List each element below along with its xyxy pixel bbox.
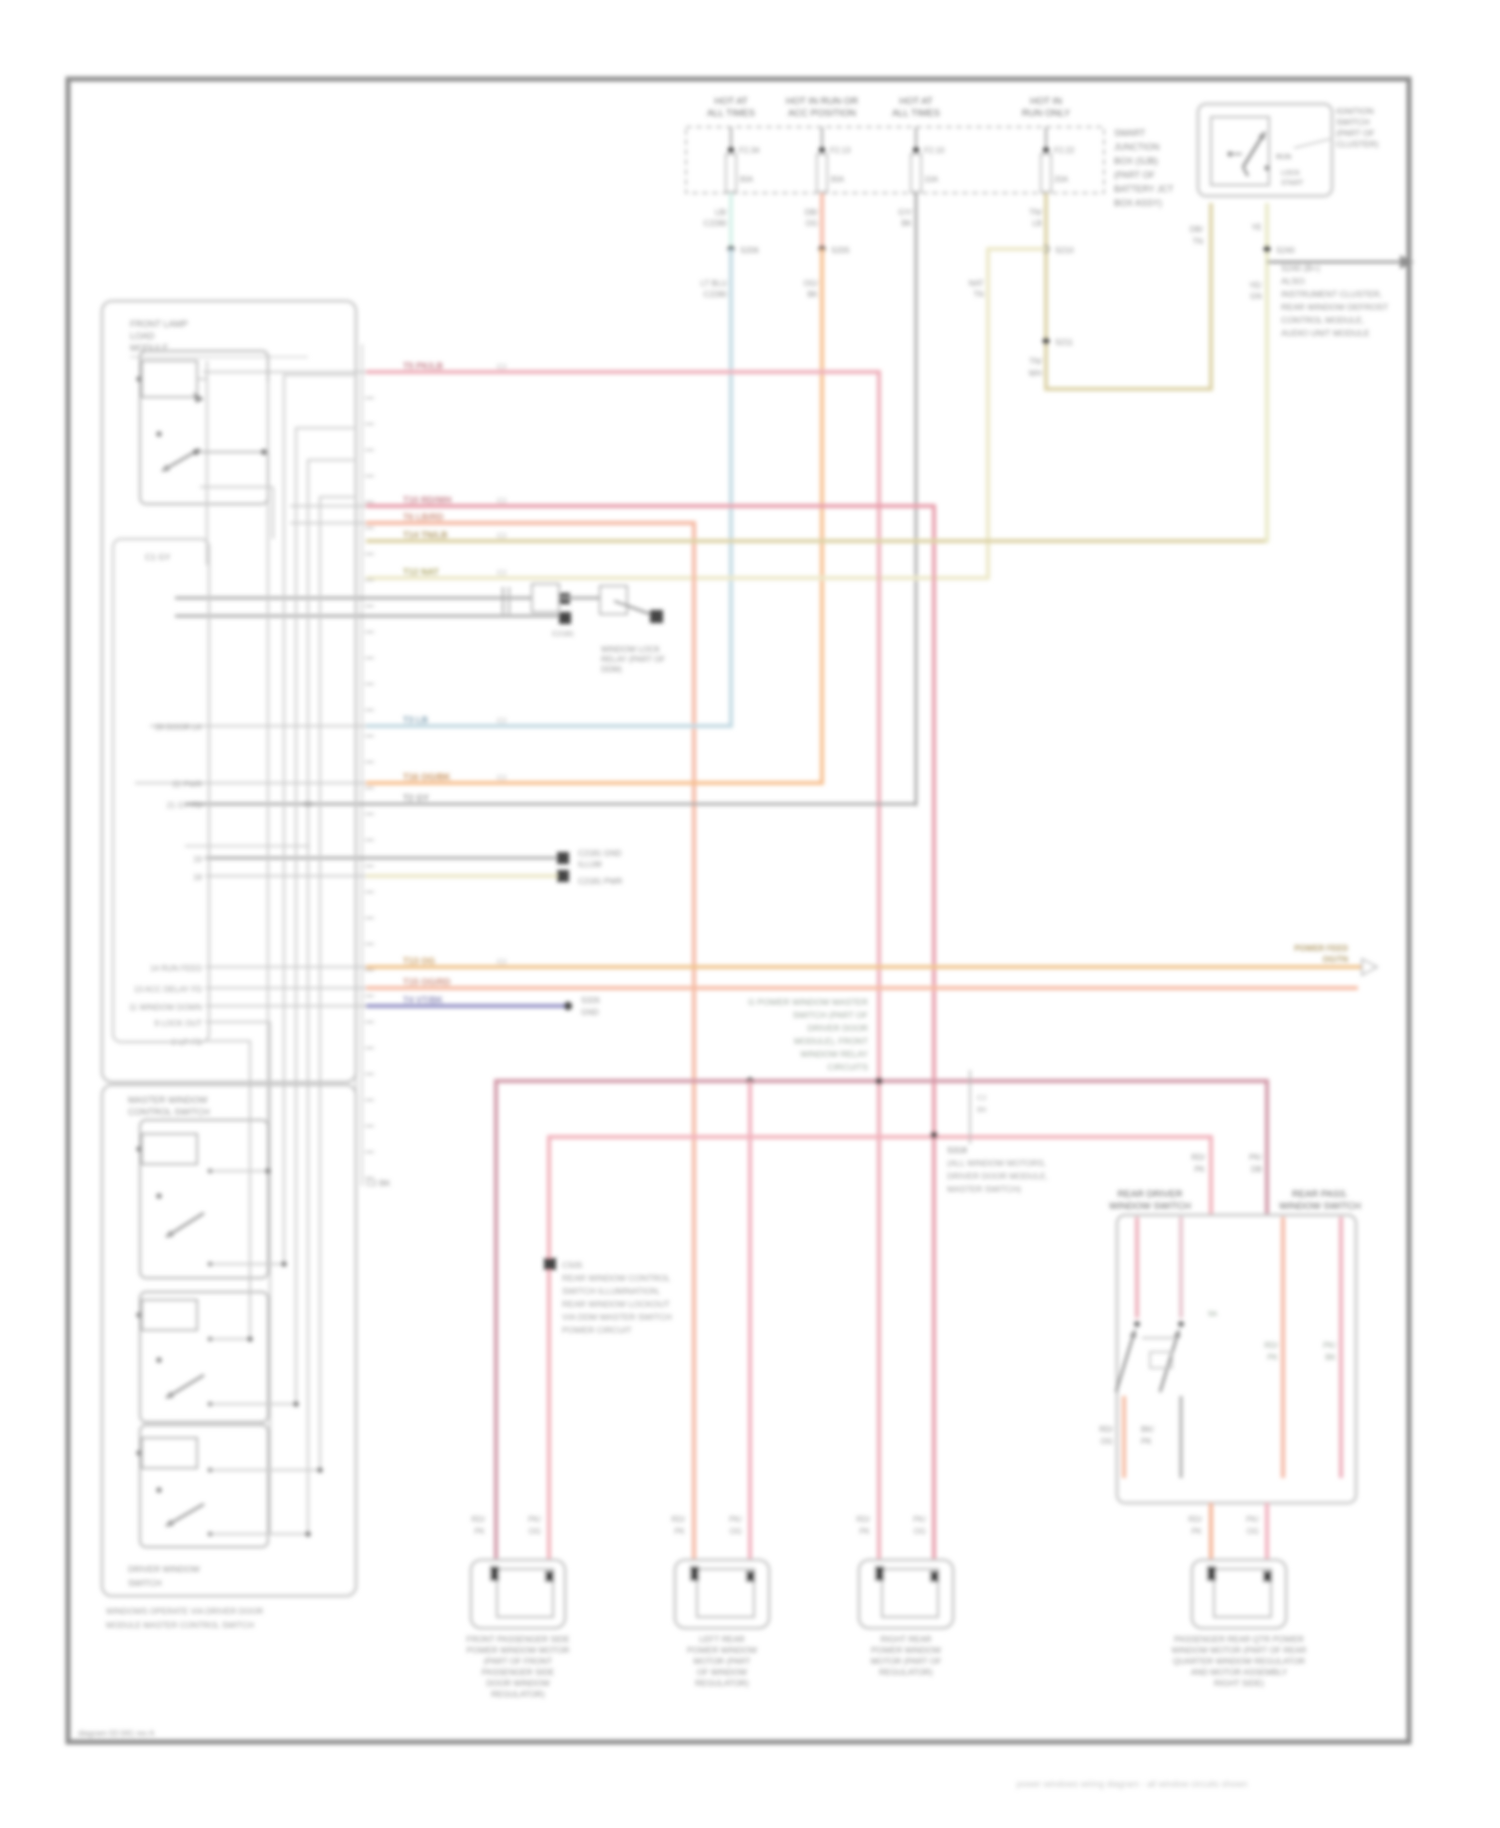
- svg-text:BOX ASSY): BOX ASSY): [1114, 198, 1162, 208]
- svg-text:18: 18: [193, 873, 202, 882]
- svg-text:POWER FEED: POWER FEED: [1294, 944, 1348, 953]
- svg-text:CIRCUITS: CIRCUITS: [827, 1062, 868, 1072]
- svg-text:C2: C2: [977, 1093, 987, 1102]
- svg-text:RELAY (PART OF: RELAY (PART OF: [601, 655, 665, 664]
- svg-text:PK: PK: [859, 1527, 870, 1536]
- svg-text:REAR WINDOW LOCKOUT: REAR WINDOW LOCKOUT: [562, 1299, 671, 1309]
- svg-text:REAR DRIVER: REAR DRIVER: [1118, 1189, 1183, 1200]
- svg-text:9 LOCK OUT: 9 LOCK OUT: [154, 1019, 202, 1028]
- svg-text:BK: BK: [807, 290, 818, 299]
- svg-text:T3 LB: T3 LB: [403, 715, 429, 725]
- svg-text:DB: DB: [1251, 1165, 1262, 1174]
- svg-text:ACC POSITION: ACC POSITION: [788, 108, 856, 119]
- svg-text:HOT IN RUN OR: HOT IN RUN OR: [786, 96, 858, 107]
- svg-text:PK: PK: [1191, 1527, 1202, 1536]
- svg-text:PK/: PK/: [729, 1515, 743, 1524]
- svg-text:MOTOR (PART: MOTOR (PART: [693, 1656, 750, 1666]
- svg-text:28 DOOR LK: 28 DOOR LK: [155, 723, 203, 732]
- svg-text:RD/: RD/: [471, 1515, 486, 1524]
- svg-text:REAR WINDOW CONTROL: REAR WINDOW CONTROL: [562, 1273, 671, 1283]
- svg-text:SWITCH (PART OF: SWITCH (PART OF: [793, 1010, 868, 1020]
- svg-text:C2181 GND: C2181 GND: [578, 849, 622, 858]
- svg-text:C2280: C2280: [703, 290, 727, 299]
- svg-text:YE: YE: [1251, 223, 1262, 232]
- svg-text:C2: C2: [497, 773, 507, 782]
- svg-text:DB/: DB/: [1190, 225, 1204, 234]
- svg-text:HOT AT: HOT AT: [714, 96, 748, 107]
- svg-text:C2280: C2280: [703, 219, 727, 228]
- svg-text:POWER CIRCUIT: POWER CIRCUIT: [562, 1325, 632, 1335]
- svg-text:T15 OG/RD: T15 OG/RD: [403, 977, 451, 987]
- svg-text:OG: OG: [806, 219, 818, 228]
- svg-text:F2.22: F2.22: [1054, 146, 1075, 155]
- svg-text:CONTROL MODULE,: CONTROL MODULE,: [1281, 315, 1364, 325]
- svg-text:OG/: OG/: [803, 279, 818, 288]
- svg-text:WH: WH: [1029, 369, 1043, 378]
- svg-text:REGULATOR): REGULATOR): [879, 1667, 933, 1677]
- svg-text:AUDIO UNIT MODULE: AUDIO UNIT MODULE: [1281, 328, 1370, 338]
- svg-text:FRONT PASSENGER SIDE: FRONT PASSENGER SIDE: [466, 1634, 570, 1644]
- svg-text:START: START: [1281, 180, 1304, 187]
- svg-text:PK/: PK/: [913, 1515, 927, 1524]
- svg-text:CLUSTER): CLUSTER): [1336, 139, 1379, 149]
- svg-text:REGULATOR): REGULATOR): [695, 1678, 749, 1688]
- svg-text:PK/: PK/: [1246, 1515, 1260, 1524]
- svg-text:IGNITION: IGNITION: [1336, 106, 1374, 116]
- svg-text:DRIVER DOOR: DRIVER DOOR: [807, 1023, 868, 1033]
- svg-text:T6 LB/RD: T6 LB/RD: [403, 512, 444, 522]
- svg-text:F2.34: F2.34: [739, 146, 760, 155]
- svg-text:30A: 30A: [739, 175, 754, 184]
- svg-text:LOAD: LOAD: [130, 331, 155, 341]
- svg-text:19: 19: [193, 855, 202, 864]
- svg-text:OG: OG: [529, 1527, 541, 1536]
- svg-text:C2: C2: [497, 362, 507, 371]
- svg-text:ALL TIMES: ALL TIMES: [892, 108, 940, 119]
- svg-text:T12 NAT: T12 NAT: [403, 567, 439, 577]
- svg-text:S211: S211: [1055, 338, 1074, 347]
- svg-text:T14 TN/LB: T14 TN/LB: [403, 530, 448, 540]
- svg-text:PK: PK: [1194, 1165, 1205, 1174]
- svg-text:LB: LB: [1032, 219, 1042, 228]
- svg-text:SMART: SMART: [1114, 128, 1146, 138]
- svg-text:C2: C2: [497, 496, 507, 505]
- svg-text:SWITCH: SWITCH: [128, 1578, 162, 1588]
- svg-text:RD/: RD/: [856, 1515, 871, 1524]
- svg-text:RD/: RD/: [1188, 1515, 1203, 1524]
- svg-text:RIGHT REAR: RIGHT REAR: [880, 1634, 931, 1644]
- svg-text:BATTERY JCT: BATTERY JCT: [1114, 184, 1174, 194]
- svg-text:21 GY FD: 21 GY FD: [167, 801, 203, 810]
- svg-text:RUN: RUN: [1276, 154, 1291, 161]
- svg-text:22 PWR: 22 PWR: [172, 780, 202, 789]
- svg-text:QUARTER WINDOW REGULATOR: QUARTER WINDOW REGULATOR: [1173, 1656, 1305, 1666]
- svg-text:C505: C505: [562, 1260, 583, 1270]
- svg-text:FRONT LAMP: FRONT LAMP: [130, 319, 188, 329]
- svg-text:ALSO:: ALSO:: [1281, 276, 1306, 286]
- svg-text:S206: S206: [740, 246, 759, 255]
- svg-text:BK: BK: [977, 1105, 987, 1114]
- svg-text:RUN ONLY: RUN ONLY: [1022, 108, 1071, 119]
- svg-text:C2: C2: [497, 568, 507, 577]
- svg-text:POWER WINDOW MOTOR: POWER WINDOW MOTOR: [466, 1645, 569, 1655]
- svg-text:INSTRUMENT CLUSTER,: INSTRUMENT CLUSTER,: [1281, 289, 1382, 299]
- svg-text:(PART OF: (PART OF: [1114, 170, 1156, 180]
- svg-text:JUNCTION: JUNCTION: [1114, 142, 1160, 152]
- svg-text:T4 VT/BK: T4 VT/BK: [403, 995, 444, 1005]
- svg-text:S210: S210: [1055, 246, 1074, 255]
- svg-text:GN: GN: [1250, 292, 1262, 301]
- svg-text:ALL TIMES: ALL TIMES: [707, 108, 755, 119]
- svg-text:power windows wiring diagram -: power windows wiring diagram - all windo…: [1016, 1779, 1247, 1789]
- svg-text:HOT AT: HOT AT: [899, 96, 933, 107]
- svg-text:LB/: LB/: [715, 208, 728, 217]
- svg-text:POWER WINDOW: POWER WINDOW: [871, 1645, 941, 1655]
- svg-text:DOOR WINDOW: DOOR WINDOW: [486, 1678, 550, 1688]
- svg-text:PASSENGER SIDE: PASSENGER SIDE: [482, 1667, 555, 1677]
- svg-text:YE/: YE/: [1249, 281, 1263, 290]
- svg-text:TN/: TN/: [1029, 208, 1043, 217]
- svg-text:WINDOW MOTOR (PART OF REAR: WINDOW MOTOR (PART OF REAR: [1172, 1645, 1307, 1655]
- svg-text:MODULE), FRONT: MODULE), FRONT: [794, 1036, 869, 1046]
- svg-text:T13 OG: T13 OG: [403, 956, 435, 966]
- svg-text:F2.10: F2.10: [924, 146, 945, 155]
- svg-text:(ALL WINDOW MOTORS,: (ALL WINDOW MOTORS,: [947, 1158, 1046, 1168]
- svg-text:(PART OF FRONT: (PART OF FRONT: [484, 1656, 553, 1666]
- svg-text:GND: GND: [581, 1008, 599, 1017]
- svg-text:CONTROL SWITCH: CONTROL SWITCH: [128, 1107, 210, 1117]
- svg-text:HOT IN: HOT IN: [1030, 96, 1062, 107]
- svg-text:C2181 PWR: C2181 PWR: [578, 877, 623, 886]
- svg-text:5A: 5A: [1208, 1309, 1217, 1318]
- svg-text:13 ACC DELAY FD: 13 ACC DELAY FD: [134, 985, 202, 994]
- svg-text:GY/: GY/: [898, 208, 913, 217]
- svg-text:POWER WINDOW: POWER WINDOW: [687, 1645, 757, 1655]
- svg-text:F2.13: F2.13: [830, 146, 851, 155]
- svg-text:C2: C2: [497, 531, 507, 540]
- svg-text:BK: BK: [1325, 1353, 1336, 1362]
- svg-text:MASTER SWITCH): MASTER SWITCH): [947, 1184, 1021, 1194]
- svg-text:C2181: C2181: [552, 629, 574, 638]
- svg-text:14 RUN FEED: 14 RUN FEED: [150, 964, 202, 973]
- svg-text:S240: S240: [1276, 246, 1295, 255]
- svg-text:SWITCH ILLUMINATION,: SWITCH ILLUMINATION,: [562, 1286, 660, 1296]
- svg-text:30A: 30A: [830, 175, 845, 184]
- svg-text:OG/TN: OG/TN: [1323, 955, 1349, 964]
- svg-text:S318: S318: [947, 1145, 967, 1155]
- svg-text:ILLUM: ILLUM: [578, 860, 602, 869]
- svg-text:RD/: RD/: [671, 1515, 686, 1524]
- svg-text:C2: C2: [497, 716, 507, 725]
- svg-text:T16 OG/BK: T16 OG/BK: [403, 772, 451, 782]
- svg-text:C2 BK: C2 BK: [366, 1178, 391, 1188]
- svg-text:20A: 20A: [1054, 175, 1069, 184]
- svg-text:PK/: PK/: [528, 1515, 542, 1524]
- svg-text:BK/: BK/: [1141, 1425, 1155, 1434]
- svg-text:TN: TN: [973, 290, 984, 299]
- svg-text:OG: OG: [1101, 1437, 1113, 1446]
- svg-text:OG: OG: [914, 1527, 926, 1536]
- svg-text:SWITCH: SWITCH: [1336, 117, 1370, 127]
- svg-text:LOCK: LOCK: [1281, 170, 1300, 177]
- svg-text:RD/: RD/: [1264, 1341, 1279, 1350]
- svg-text:REAR WINDOW DEFROST: REAR WINDOW DEFROST: [1281, 302, 1389, 312]
- svg-text:MASTER WINDOW: MASTER WINDOW: [128, 1095, 208, 1105]
- svg-text:MODULE MASTER CONTROL SWITCH: MODULE MASTER CONTROL SWITCH: [106, 1621, 254, 1630]
- svg-text:DDM): DDM): [601, 665, 622, 674]
- svg-text:10A: 10A: [924, 175, 939, 184]
- svg-text:PK: PK: [674, 1527, 685, 1536]
- svg-text:PK: PK: [474, 1527, 485, 1536]
- svg-text:WINDOW LOCK: WINDOW LOCK: [601, 645, 661, 654]
- svg-text:MOTOR (PART OF: MOTOR (PART OF: [871, 1656, 942, 1666]
- svg-text:diagram 02-041 rev A: diagram 02-041 rev A: [78, 1729, 155, 1738]
- svg-text:DRIVER WINDOW: DRIVER WINDOW: [128, 1564, 200, 1574]
- svg-text:WINDOW SWITCH: WINDOW SWITCH: [1279, 1201, 1361, 1212]
- svg-text:WINDOW RELAY: WINDOW RELAY: [800, 1049, 868, 1059]
- svg-text:RD/: RD/: [1099, 1425, 1114, 1434]
- svg-text:LT BLU: LT BLU: [701, 279, 728, 288]
- svg-text:TN/: TN/: [1029, 357, 1043, 366]
- svg-text:RIGHT SIDE): RIGHT SIDE): [1214, 1678, 1264, 1688]
- svg-text:DRIVER DOOR MODULE,: DRIVER DOOR MODULE,: [947, 1171, 1048, 1181]
- svg-text:G POWER WINDOW MASTER: G POWER WINDOW MASTER: [748, 997, 868, 1007]
- svg-text:REAR PASS.: REAR PASS.: [1292, 1189, 1348, 1200]
- svg-text:OG: OG: [730, 1527, 742, 1536]
- svg-text:BK: BK: [901, 219, 912, 228]
- svg-text:LEFT REAR: LEFT REAR: [699, 1634, 745, 1644]
- svg-text:VIA DDM MASTER SWITCH: VIA DDM MASTER SWITCH: [562, 1312, 672, 1322]
- svg-text:PK: PK: [1141, 1437, 1152, 1446]
- svg-text:WINDOW SWITCH: WINDOW SWITCH: [1109, 1201, 1191, 1212]
- svg-text:T5 PK/LB: T5 PK/LB: [403, 361, 444, 371]
- svg-text:S205: S205: [831, 246, 850, 255]
- svg-text:TN: TN: [1192, 237, 1203, 246]
- svg-text:C2: C2: [497, 957, 507, 966]
- svg-text:C1 GY: C1 GY: [145, 552, 171, 562]
- svg-text:S326: S326: [581, 996, 600, 1005]
- svg-text:RD/: RD/: [1191, 1153, 1206, 1162]
- svg-text:11 WINDOW DOWN: 11 WINDOW DOWN: [129, 1003, 202, 1012]
- svg-text:PK/: PK/: [1323, 1341, 1337, 1350]
- svg-text:PK/: PK/: [1249, 1153, 1263, 1162]
- svg-text:PK: PK: [1267, 1353, 1278, 1362]
- svg-text:T10 RD/WH: T10 RD/WH: [403, 495, 452, 505]
- svg-text:PASSENGER REAR QTR POWER: PASSENGER REAR QTR POWER: [1174, 1634, 1304, 1644]
- svg-text:WINDOWS OPERATE VIA DRIVER DOO: WINDOWS OPERATE VIA DRIVER DOOR: [106, 1607, 263, 1616]
- svg-text:REGULATOR): REGULATOR): [491, 1689, 545, 1699]
- svg-text:BOX (SJB): BOX (SJB): [1114, 156, 1158, 166]
- svg-text:NAT: NAT: [969, 279, 985, 288]
- svg-text:T2 GY: T2 GY: [403, 793, 429, 803]
- svg-text:AND MOTOR ASSEMBLY: AND MOTOR ASSEMBLY: [1191, 1667, 1288, 1677]
- svg-text:S240 (B+): S240 (B+): [1281, 263, 1320, 273]
- svg-text:DB/: DB/: [805, 208, 819, 217]
- svg-text:OG: OG: [1247, 1527, 1259, 1536]
- svg-text:OF WINDOW: OF WINDOW: [697, 1667, 747, 1677]
- svg-text:(PART OF: (PART OF: [1336, 128, 1375, 138]
